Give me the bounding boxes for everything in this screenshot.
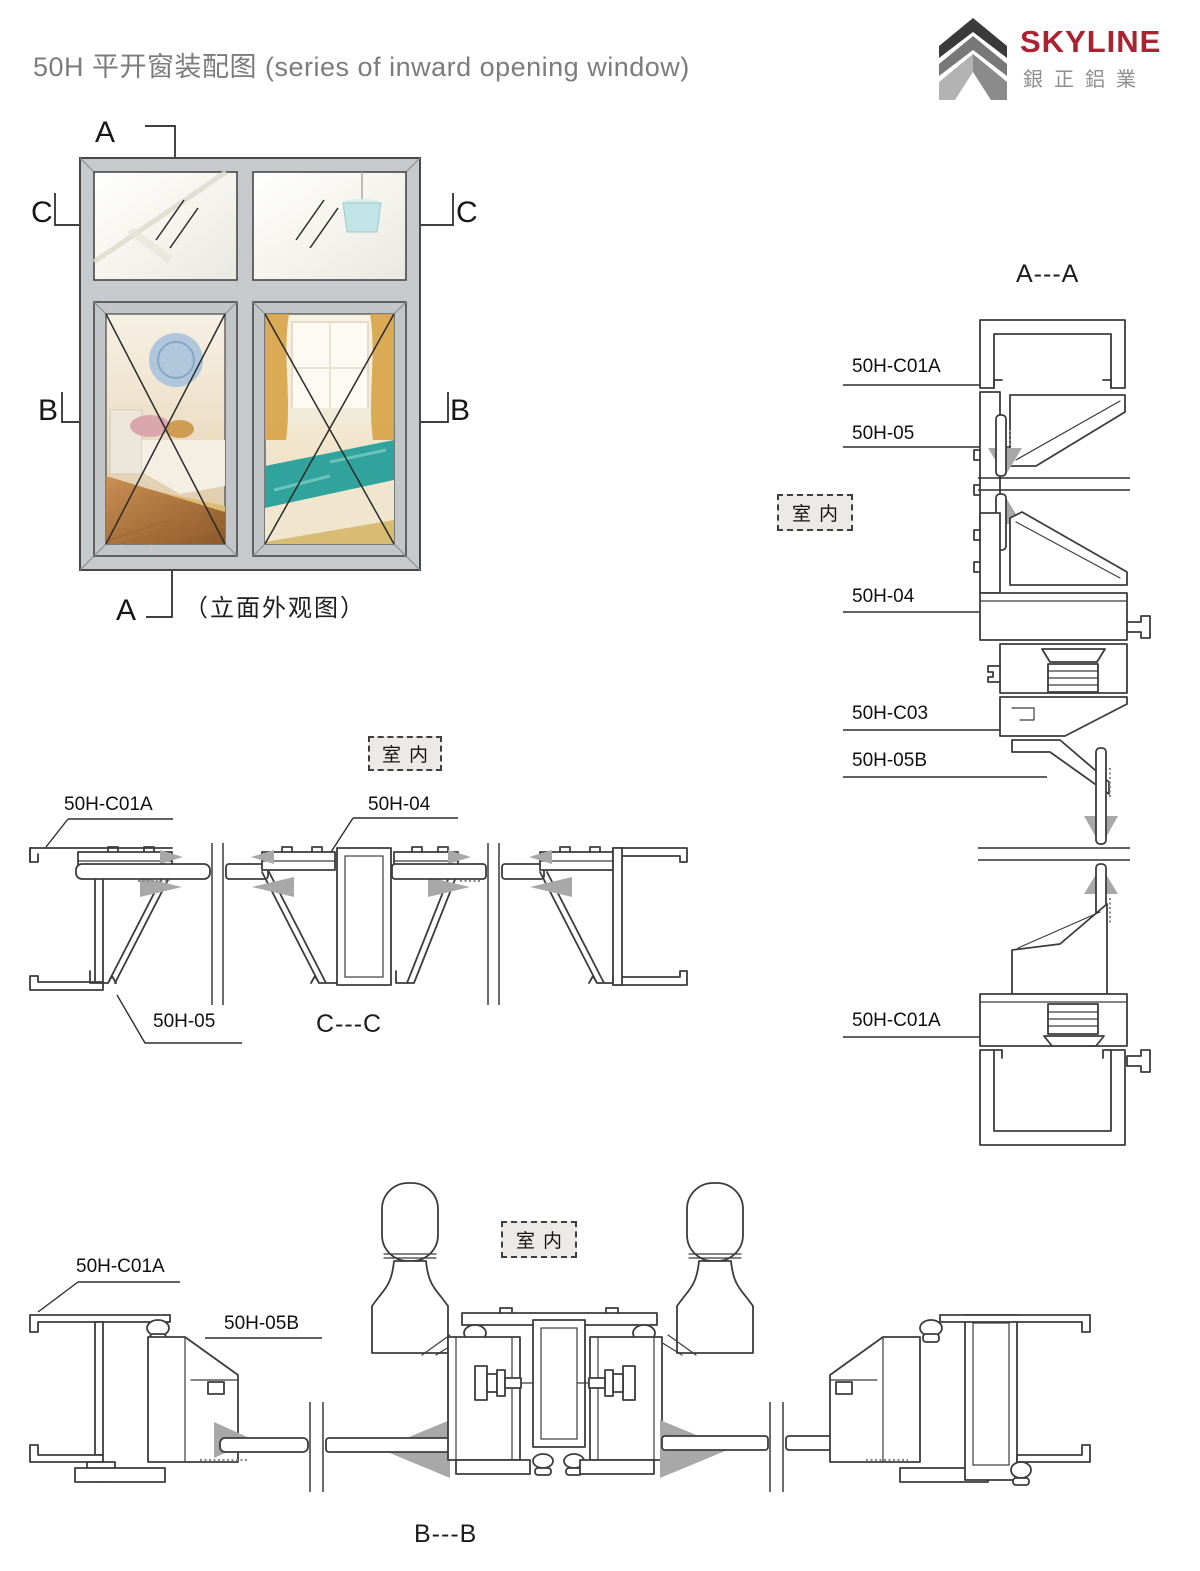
window-elevation-drawing [30, 110, 500, 640]
label-bb-05b: 50H-05B [224, 1313, 299, 1335]
page-title: 50H 平开窗装配图 (series of inward opening win… [33, 45, 690, 84]
interior-label-aa: 室内 [777, 494, 853, 531]
marker-b-right: B [450, 394, 470, 428]
profile-glazing-bead-05b [1012, 740, 1109, 794]
window-handle-left [372, 1183, 462, 1355]
label-cc-c01a: 50H-C01A [64, 794, 153, 816]
casement-sash-left [94, 302, 237, 556]
label-aa-c01a-top: 50H-C01A [852, 356, 941, 378]
brand-wordmark: SKYLINE [1020, 24, 1161, 60]
interior-label-bb: 室内 [501, 1221, 577, 1258]
profile-head-frame [980, 320, 1125, 388]
skyline-logo-icon [933, 16, 1015, 102]
profile-bottom-sash [1012, 904, 1107, 994]
cc-bead-2 [262, 847, 338, 983]
brand-chinese-name: 銀正鋁業 [1023, 63, 1147, 92]
marker-b-left: B [38, 394, 58, 428]
label-aa-c01a-bottom: 50H-C01A [852, 1010, 941, 1032]
section-aa-drawing [760, 300, 1200, 1200]
label-aa-05: 50H-05 [852, 423, 914, 445]
bb-central-assembly [448, 1308, 662, 1475]
interior-label-cc: 室内 [368, 736, 442, 771]
assembly-drawing-page: 50H 平开窗装配图 (series of inward opening win… [0, 0, 1200, 1571]
profile-sill-frame [980, 994, 1150, 1145]
window-handle-right [656, 1183, 753, 1355]
label-bb-c01a: 50H-C01A [76, 1256, 165, 1278]
bb-right-frame [940, 1315, 1090, 1485]
elevation-caption: （立面外观图） [184, 588, 366, 623]
marker-a-bottom: A [116, 594, 136, 628]
cc-glass-1 [76, 843, 268, 1005]
fixed-pane-right [253, 172, 406, 280]
marker-c-right: C [456, 196, 478, 230]
fixed-pane-left [94, 172, 237, 280]
section-bb-title: B---B [414, 1520, 477, 1549]
label-aa-05b: 50H-05B [852, 750, 927, 772]
bb-glass-right [662, 1402, 783, 1492]
label-cc-04: 50H-04 [368, 794, 430, 816]
profile-mullion-04 [980, 593, 1127, 640]
marker-a-top: A [95, 116, 115, 150]
casement-sash-right [253, 302, 406, 556]
profile-transom-sash [974, 512, 1127, 593]
cc-mullion-04 [337, 848, 391, 985]
label-cc-05: 50H-05 [153, 1011, 215, 1033]
label-aa-c03: 50H-C03 [852, 703, 928, 725]
label-aa-04: 50H-04 [852, 586, 914, 608]
section-bb-drawing [20, 1170, 1150, 1515]
marker-c-left: C [31, 196, 53, 230]
section-cc-title: C---C [316, 1010, 382, 1039]
cc-right-frame [613, 848, 687, 985]
bb-glass-left-2 [326, 1438, 450, 1452]
cc-bead-4 [540, 847, 616, 983]
section-aa-title: A---A [1016, 260, 1079, 289]
